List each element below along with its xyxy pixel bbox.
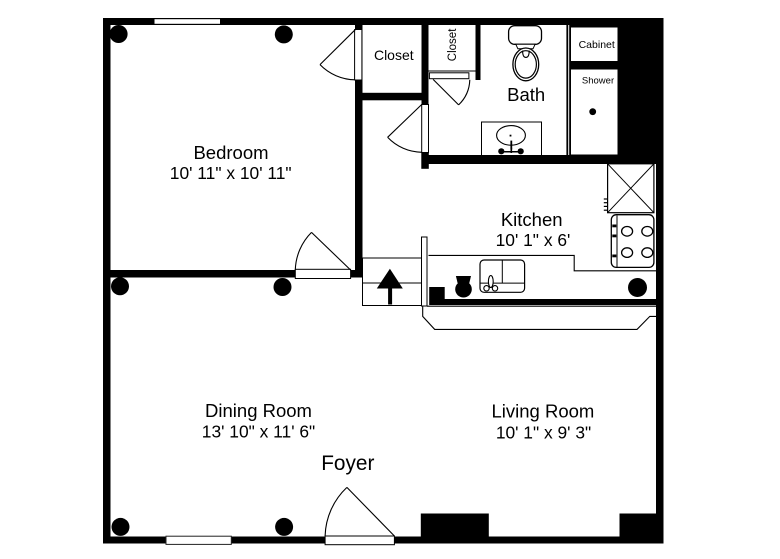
svg-text:Closet: Closet xyxy=(447,28,459,61)
svg-text:Bath: Bath xyxy=(507,84,545,105)
svg-text:13' 10" x 11' 6": 13' 10" x 11' 6" xyxy=(202,422,315,442)
svg-text:10' 1" x 6': 10' 1" x 6' xyxy=(496,230,571,250)
svg-text:10' 1" x 9' 3": 10' 1" x 9' 3" xyxy=(496,423,591,443)
svg-text:10' 11" x 10' 11": 10' 11" x 10' 11" xyxy=(170,163,292,183)
svg-text:Foyer: Foyer xyxy=(321,452,374,475)
svg-text:Cabinet: Cabinet xyxy=(579,39,615,51)
svg-text:Dining Room: Dining Room xyxy=(205,400,312,421)
svg-text:Living Room: Living Room xyxy=(491,401,594,422)
svg-text:Bedroom: Bedroom xyxy=(193,142,268,163)
svg-text:Shower: Shower xyxy=(582,75,614,86)
svg-text:Closet: Closet xyxy=(374,47,414,63)
svg-text:Kitchen: Kitchen xyxy=(501,209,563,230)
